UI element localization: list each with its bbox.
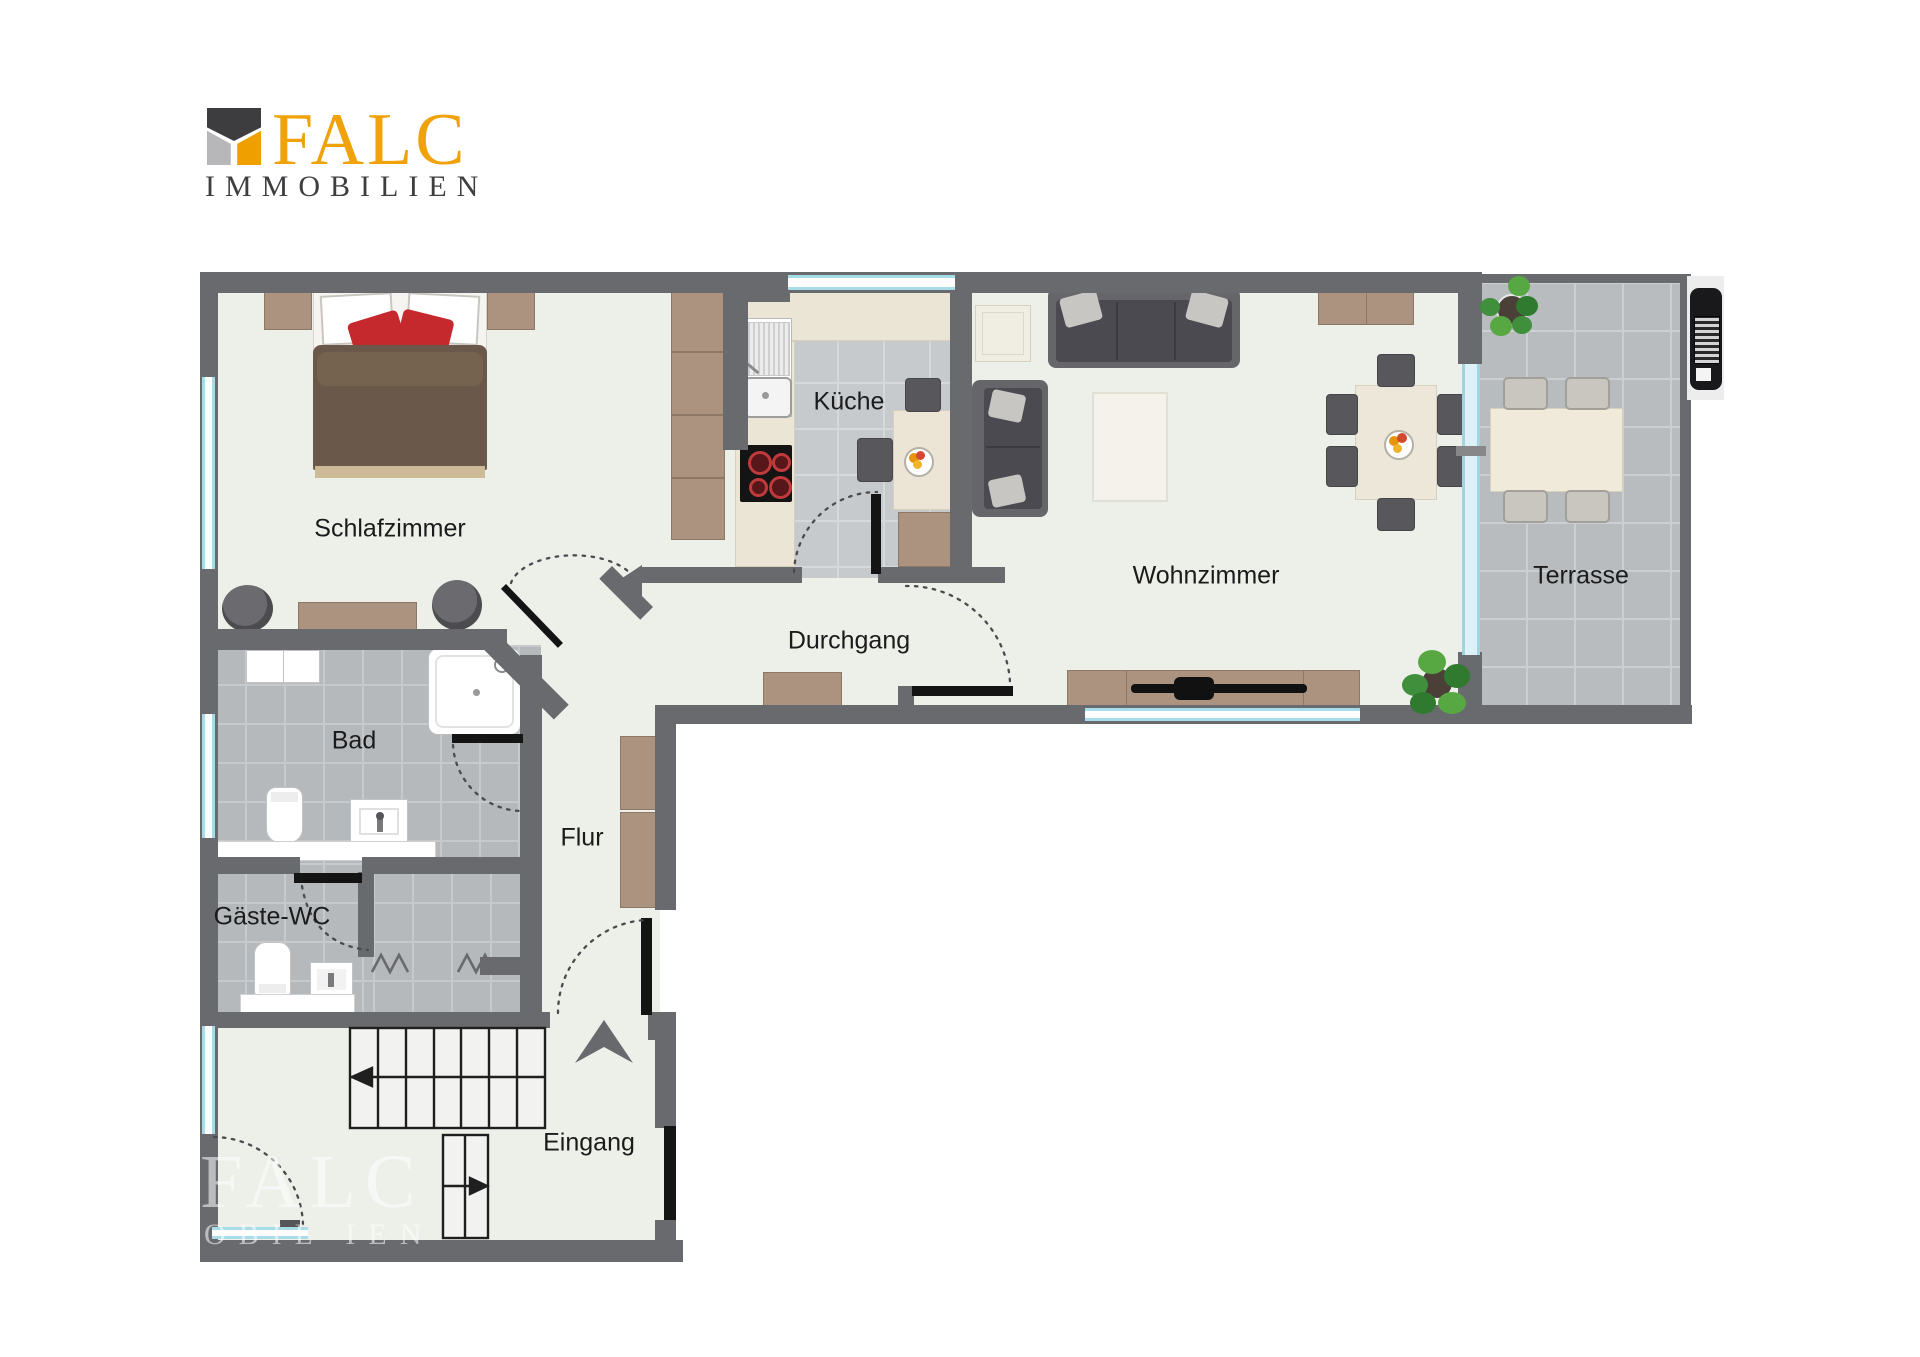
wc-sink xyxy=(310,962,353,997)
bath-cabinet xyxy=(246,650,320,683)
grill-icon xyxy=(1690,288,1722,390)
kitchen-bench xyxy=(898,512,956,567)
room-label-terrasse: Terrasse xyxy=(1533,562,1629,591)
tv xyxy=(1131,684,1307,693)
wall-bath-right xyxy=(520,655,542,1015)
room-label-eingang: Eingang xyxy=(543,1129,635,1158)
wall-eingang-top xyxy=(200,1012,550,1028)
wall-utility-stub xyxy=(480,957,522,975)
bath-sink xyxy=(350,799,408,844)
livingroom-plant-icon xyxy=(1402,648,1472,716)
wall-bath-wc-b xyxy=(362,857,541,874)
room-label-gaeste-wc: Gäste-WC xyxy=(214,903,331,932)
apartment-door-leaf xyxy=(641,918,652,1015)
nightstand-left xyxy=(264,291,312,330)
terrace-chair-top-2 xyxy=(1565,377,1610,410)
wc-sliding-door xyxy=(294,873,362,883)
dining-fruit-bowl xyxy=(1384,430,1414,460)
terrace-plant-icon xyxy=(1480,276,1538,338)
terrace-table xyxy=(1490,408,1623,492)
wc-counter xyxy=(240,994,355,1014)
sofa-loveseat xyxy=(972,380,1048,517)
pouf-left xyxy=(222,585,273,632)
terrace-glass-door xyxy=(1462,364,1480,655)
kitchen-chair-top xyxy=(905,378,941,412)
bath-toilet xyxy=(266,787,303,843)
terrace-chair-top-1 xyxy=(1503,377,1548,410)
terrace-door-handle xyxy=(1456,446,1486,456)
wall-kitchen-living xyxy=(950,272,972,567)
wall-terracedoor-top-stub xyxy=(1458,272,1482,364)
brand-logo: FALC IMMOBILIEN xyxy=(205,103,475,203)
tv-lowboard xyxy=(1067,670,1360,706)
sofa-large xyxy=(1048,288,1240,368)
shower-door-bar xyxy=(452,734,523,743)
kitchen-chair-left xyxy=(857,438,893,482)
rug xyxy=(1092,392,1168,502)
logo-brand-text: FALC xyxy=(272,103,468,177)
entrance-door-closed xyxy=(664,1126,676,1220)
room-label-flur: Flur xyxy=(560,824,603,853)
wall-kitchen-bottom-right xyxy=(878,567,1005,583)
livingroom-door-leaf xyxy=(912,686,1013,696)
watermark-brand: FALC xyxy=(200,1144,425,1220)
wall-bath-wc-a xyxy=(200,857,300,874)
stove-cooktop xyxy=(740,445,792,502)
bath-window xyxy=(202,714,215,838)
dining-chair-bottom xyxy=(1377,498,1415,531)
wall-kitchen-bottom-left xyxy=(640,567,802,583)
wall-wc-right xyxy=(358,872,374,957)
room-label-kueche: Küche xyxy=(814,388,885,417)
bed-footboard xyxy=(315,466,485,478)
eingang-window xyxy=(202,1026,215,1134)
kitchen-door-leaf xyxy=(871,494,881,574)
terrace-chair-bottom-1 xyxy=(1503,490,1548,523)
fruit-bowl xyxy=(904,447,934,477)
side-table xyxy=(975,305,1031,362)
kitchen-window xyxy=(788,275,955,290)
hall-sideboard xyxy=(763,672,842,706)
floor-plan-page: FALC IMMOBILIEN xyxy=(0,0,1920,1357)
utility-floor xyxy=(373,863,541,1015)
wall-bedroom-bottom xyxy=(200,629,507,650)
wall-kitchen-corner xyxy=(723,272,790,302)
logo-subtitle-text: IMMOBILIEN xyxy=(205,172,488,202)
room-label-durchgang: Durchgang xyxy=(788,627,910,656)
room-label-schlafzimmer: Schlafzimmer xyxy=(314,515,465,544)
wall-eingang-right-a xyxy=(655,1040,676,1128)
dining-chair-left-1 xyxy=(1326,394,1358,435)
double-bed xyxy=(313,290,487,478)
dining-chair-left-2 xyxy=(1326,446,1358,487)
wall-flur-right xyxy=(655,705,676,910)
bed-blanket-fold xyxy=(317,352,483,386)
room-label-wohnzimmer: Wohnzimmer xyxy=(1133,562,1280,591)
watermark-subtitle: OBIL IEN xyxy=(204,1220,434,1250)
wall-flur-corner xyxy=(648,1012,676,1040)
bedroom-window xyxy=(202,377,215,569)
falc-logo-icon xyxy=(207,108,261,165)
pouf-right xyxy=(432,580,482,630)
livingroom-window xyxy=(1085,708,1360,721)
dining-chair-top xyxy=(1377,354,1415,387)
sideboard-top xyxy=(1318,288,1414,325)
dining-table xyxy=(1355,385,1437,500)
wc-toilet xyxy=(254,942,291,999)
wardrobe xyxy=(671,287,725,540)
kitchen-table xyxy=(893,410,955,510)
room-label-bad: Bad xyxy=(332,727,376,756)
nightstand-right xyxy=(487,291,535,330)
terrace-chair-bottom-2 xyxy=(1565,490,1610,523)
